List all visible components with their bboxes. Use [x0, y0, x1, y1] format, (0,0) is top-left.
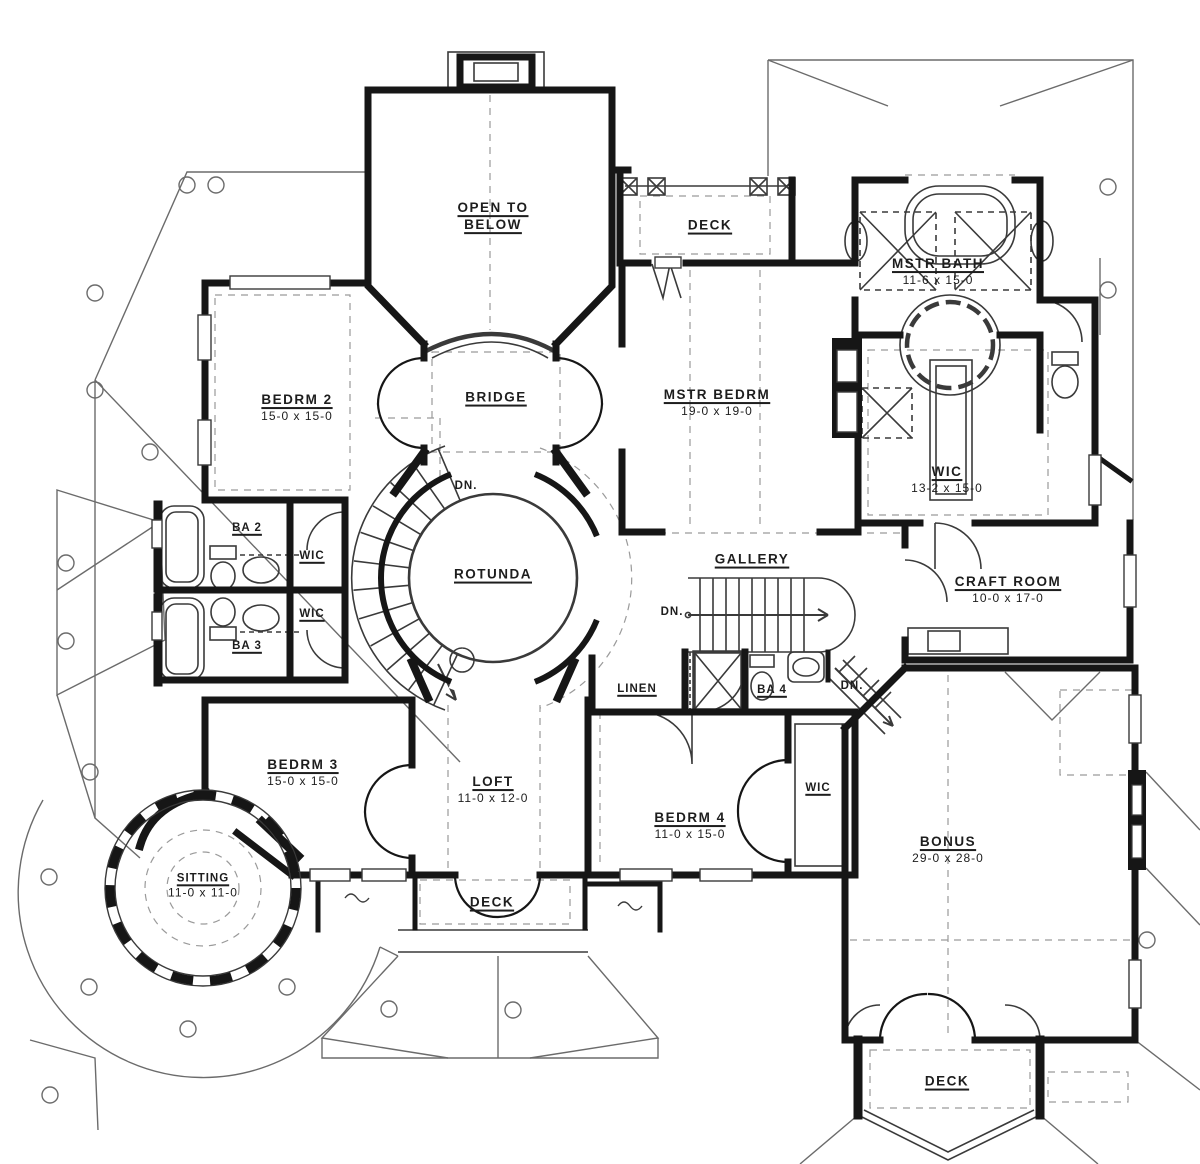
- room-label-wic-ba2: WIC: [299, 549, 324, 563]
- room-label-wic-mstr: WIC13-2 x 15-0: [911, 464, 983, 496]
- room-label-deck-bottom-right: DECK: [925, 1074, 969, 1091]
- room-label-gallery: GALLERY: [715, 552, 790, 569]
- labels-layer: OPEN TO BELOW DECK MSTR BATH11-6 x 15-0 …: [0, 0, 1200, 1164]
- room-label-deck-bottom: DECK: [470, 895, 514, 912]
- room-label-mstr-bedrm: MSTR BEDRM19-0 x 19-0: [664, 387, 771, 419]
- annotation-dn-rotunda: DN.: [455, 479, 478, 493]
- annotation-dn-gallery: DN.: [661, 605, 684, 619]
- annotation-dn-bonus: DN.: [841, 679, 864, 693]
- room-label-deck-top: DECK: [688, 218, 732, 235]
- room-label-mstr-bath: MSTR BATH11-6 x 15-0: [892, 256, 984, 288]
- room-label-linen: LINEN: [617, 682, 657, 696]
- room-label-bedrm-2: BEDRM 215-0 x 15-0: [261, 392, 333, 424]
- room-label-ba-3: BA 3: [232, 639, 262, 653]
- room-label-loft: LOFT11-0 x 12-0: [458, 774, 529, 806]
- room-label-bridge: BRIDGE: [465, 390, 527, 407]
- room-label-ba-2: BA 2: [232, 521, 262, 535]
- room-label-wic-bedrm4: WIC: [805, 781, 830, 795]
- room-label-rotunda: ROTUNDA: [454, 567, 532, 584]
- room-label-bedrm-4: BEDRM 411-0 x 15-0: [654, 810, 725, 842]
- floor-plan-page: OPEN TO BELOW DECK MSTR BATH11-6 x 15-0 …: [0, 0, 1200, 1164]
- room-label-bedrm-3: BEDRM 315-0 x 15-0: [267, 757, 339, 789]
- room-label-open-to-below: OPEN TO BELOW: [443, 200, 543, 234]
- room-label-wic-ba3: WIC: [299, 607, 324, 621]
- room-label-craft-room: CRAFT ROOM10-0 x 17-0: [955, 574, 1062, 606]
- room-label-bonus: BONUS29-0 x 28-0: [912, 834, 984, 866]
- room-label-sitting: SITTING11-0 x 11-0: [168, 871, 238, 900]
- room-label-ba-4: BA 4: [757, 683, 787, 697]
